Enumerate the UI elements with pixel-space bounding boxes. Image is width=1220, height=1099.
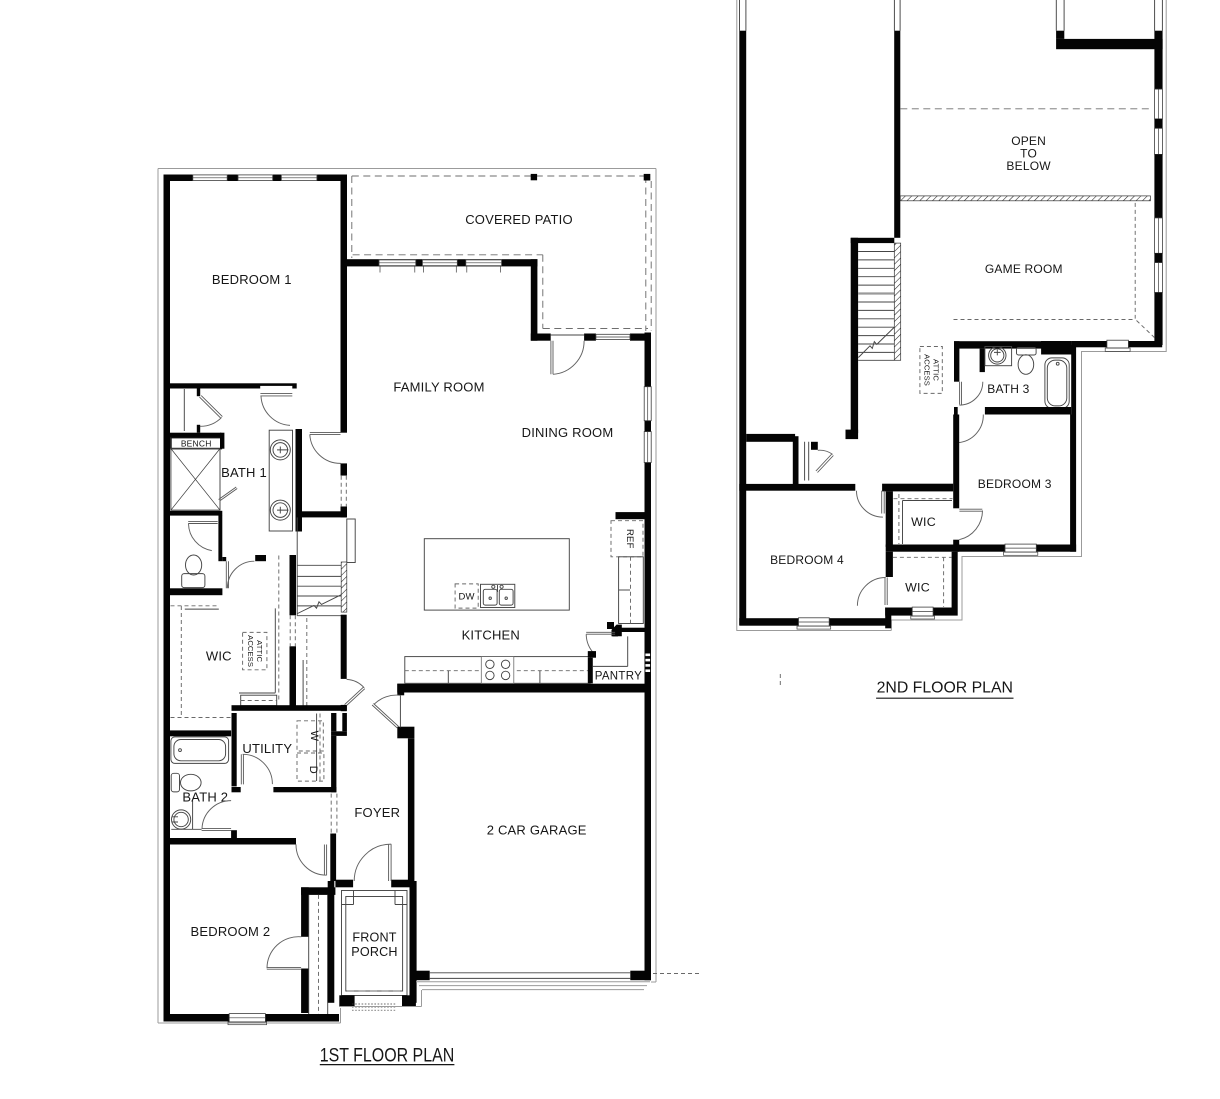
svg-text:BATH 3: BATH 3	[987, 382, 1029, 396]
svg-text:FRONT: FRONT	[352, 931, 396, 945]
svg-text:FOYER: FOYER	[354, 805, 400, 820]
svg-text:WIC: WIC	[206, 649, 232, 664]
svg-text:BEDROOM 2: BEDROOM 2	[190, 924, 270, 939]
svg-text:BEDROOM 4: BEDROOM 4	[770, 553, 844, 567]
svg-text:BELOW: BELOW	[1006, 159, 1051, 173]
svg-text:PANTRY: PANTRY	[595, 671, 642, 683]
svg-text:COVERED PATIO: COVERED PATIO	[465, 212, 573, 227]
svg-text:PORCH: PORCH	[351, 945, 397, 959]
svg-text:ATTIC: ATTIC	[255, 640, 264, 662]
svg-text:DW: DW	[458, 592, 474, 603]
svg-text:DINING ROOM: DINING ROOM	[522, 425, 614, 440]
svg-text:BEDROOM 3: BEDROOM 3	[978, 477, 1052, 491]
svg-text:UTILITY: UTILITY	[242, 741, 292, 756]
svg-text:ATTIC: ATTIC	[931, 359, 940, 381]
svg-text:BENCH: BENCH	[181, 439, 212, 449]
svg-text:WIC: WIC	[905, 580, 930, 594]
svg-text:2 CAR GARAGE: 2 CAR GARAGE	[487, 822, 587, 837]
svg-text:GAME ROOM: GAME ROOM	[985, 262, 1063, 276]
svg-text:BATH 1: BATH 1	[221, 465, 267, 480]
svg-text:BEDROOM 1: BEDROOM 1	[212, 272, 292, 287]
svg-text:ACCESS: ACCESS	[246, 635, 255, 667]
svg-text:FAMILY ROOM: FAMILY ROOM	[393, 380, 484, 395]
svg-text:2ND FLOOR PLAN: 2ND FLOOR PLAN	[877, 680, 1013, 697]
svg-text:D: D	[307, 766, 319, 774]
svg-text:W: W	[308, 731, 320, 742]
svg-text:KITCHEN: KITCHEN	[462, 628, 520, 643]
svg-text:WIC: WIC	[911, 515, 936, 529]
svg-text:REF: REF	[624, 529, 635, 549]
svg-text:ACCESS: ACCESS	[923, 354, 932, 386]
svg-text:1ST FLOOR PLAN: 1ST FLOOR PLAN	[320, 1046, 455, 1067]
